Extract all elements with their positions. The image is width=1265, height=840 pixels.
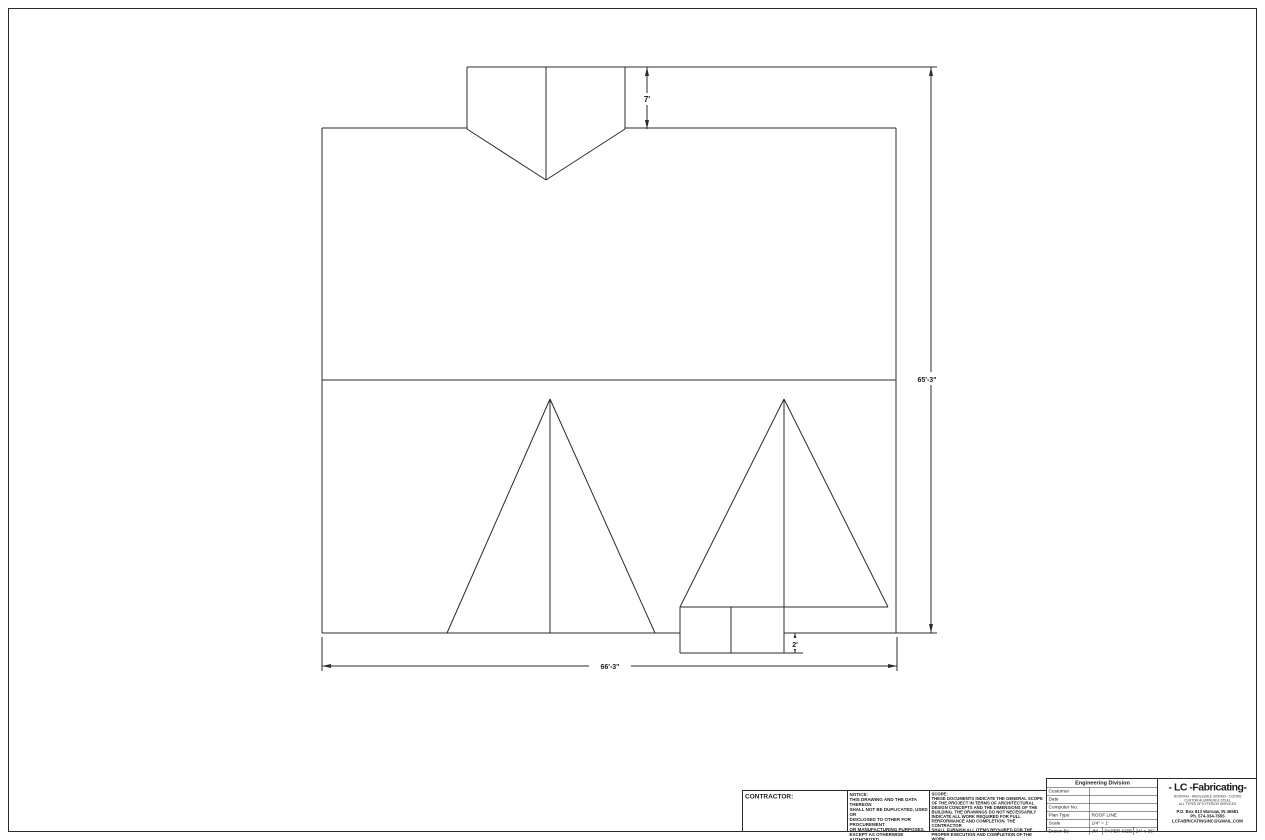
computer-no-label: Computer No. xyxy=(1047,804,1090,812)
computer-no-value xyxy=(1090,804,1158,812)
table-row: Drawn By JM PAPER SIZE 24" x 36" xyxy=(1047,828,1158,836)
engineering-division-table: Engineering Division Customer Date Compu… xyxy=(1046,778,1158,832)
scope-line: PROPER EXECUTION AND COMPLETION OF THE W… xyxy=(932,833,1046,840)
scale-label: Scale xyxy=(1047,820,1090,828)
plan-type-label: Plan Type xyxy=(1047,812,1090,820)
date-label: Date xyxy=(1047,796,1090,804)
notice-box: NOTICE: THIS DRAWING AND THE DATA THEREO… xyxy=(847,790,930,832)
paper-size-value: 24" x 36" xyxy=(1134,828,1158,836)
notice-line: DISCLOSED TO OTHER FOR PROCUREMENT xyxy=(850,817,929,827)
dormer-height-label: 7' xyxy=(644,95,650,104)
notice-line: SHALL NOT BE DUPLICATED, USED OR xyxy=(850,807,929,817)
overall-width-dimension: 66'-3" xyxy=(322,637,897,673)
customer-value xyxy=(1090,788,1158,796)
notice-line: THIS DRAWING AND THE DATA THEREON xyxy=(850,797,929,807)
contractor-box: CONTRACTOR: xyxy=(742,790,848,832)
porch-depth-label: 2' xyxy=(792,642,798,649)
table-row: Plan Type ROOF LINE xyxy=(1047,812,1158,820)
drawing-sheet: 7' 65'-3" 2' 66'-3" xyxy=(0,0,1265,840)
scope-box: SCOPE: THESE DOCUMENTS INDICATE THE GENE… xyxy=(929,790,1047,832)
drawn-by-value: JM xyxy=(1090,828,1103,836)
right-gable xyxy=(680,399,888,653)
porch xyxy=(680,607,784,653)
notice-line: EXCEPT AS OTHERWISE AUTHORIZED xyxy=(850,832,929,840)
left-gable xyxy=(447,399,655,633)
table-row: Customer xyxy=(1047,788,1158,796)
table-row: Scale 1/4" = 1' xyxy=(1047,820,1158,828)
scale-value: 1/4" = 1' xyxy=(1090,820,1158,828)
building-outline xyxy=(322,128,896,633)
company-email: LCFABRICATINGINC@GMAIL.COM xyxy=(1158,819,1257,824)
date-value xyxy=(1090,796,1158,804)
table-row: Computer No. xyxy=(1047,804,1158,812)
customer-label: Customer xyxy=(1047,788,1090,796)
drawn-by-label: Drawn By xyxy=(1047,828,1090,836)
paper-size-label: PAPER SIZE xyxy=(1103,828,1134,836)
company-box: - LC -Fabricating- ROOFING - WHOLESALE S… xyxy=(1157,778,1257,832)
dormer-height-dimension: 7' xyxy=(625,67,937,129)
overall-width-label: 66'-3" xyxy=(601,664,620,671)
table-row: Date xyxy=(1047,796,1158,804)
engineering-division-header: Engineering Division xyxy=(1047,779,1158,788)
overall-height-dimension: 65'-3" xyxy=(896,67,947,633)
company-services-line: ALL TYPES OF EXTERIOR SERVICES xyxy=(1158,803,1257,807)
dormer xyxy=(467,67,625,180)
contractor-label: CONTRACTOR: xyxy=(743,791,849,833)
plan-type-value: ROOF LINE xyxy=(1090,812,1158,820)
company-logo: - LC -Fabricating- xyxy=(1158,782,1257,793)
overall-height-label: 65'-3" xyxy=(918,377,937,384)
roof-line-drawing: 7' 65'-3" 2' 66'-3" xyxy=(0,0,1265,840)
porch-depth-dimension: 2' xyxy=(784,633,803,653)
